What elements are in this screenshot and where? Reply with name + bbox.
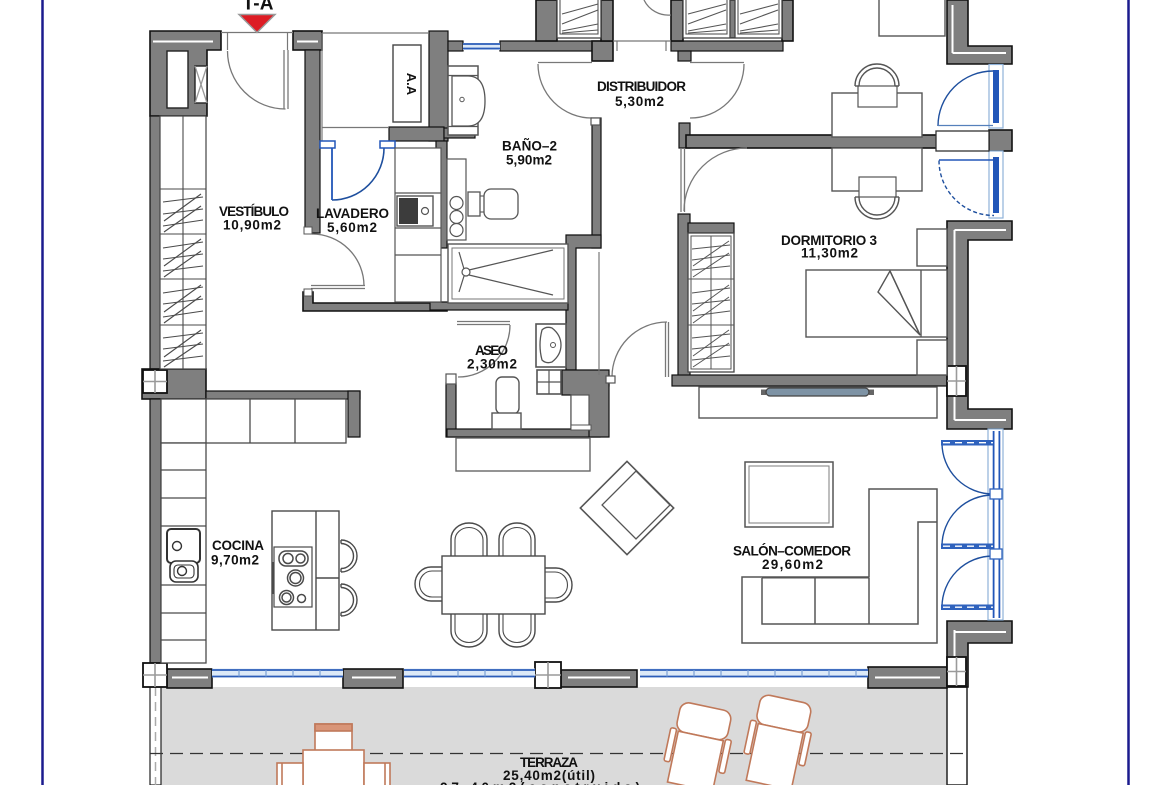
svg-text:5,60m2: 5,60m2 bbox=[327, 220, 377, 235]
svg-text:LAVADERO: LAVADERO bbox=[316, 206, 389, 221]
svg-text:5,30m2: 5,30m2 bbox=[615, 94, 664, 109]
svg-text:BAÑO–2: BAÑO–2 bbox=[502, 139, 557, 154]
svg-text:T-A: T-A bbox=[243, 0, 274, 15]
svg-text:5,90m2: 5,90m2 bbox=[506, 153, 552, 168]
svg-text:COCINA: COCINA bbox=[212, 538, 264, 553]
svg-text:9,70m2: 9,70m2 bbox=[211, 553, 259, 568]
svg-text:11,30m2: 11,30m2 bbox=[801, 246, 858, 261]
svg-text:2,30m2: 2,30m2 bbox=[467, 357, 517, 372]
svg-text:DISTRIBUIDOR: DISTRIBUIDOR bbox=[597, 79, 686, 94]
svg-text:25,40m2(útil): 25,40m2(útil) bbox=[503, 768, 595, 783]
svg-text:A.A: A.A bbox=[404, 73, 419, 96]
svg-text:29,60m2: 29,60m2 bbox=[762, 557, 823, 572]
svg-text:10,90m2: 10,90m2 bbox=[223, 218, 281, 233]
